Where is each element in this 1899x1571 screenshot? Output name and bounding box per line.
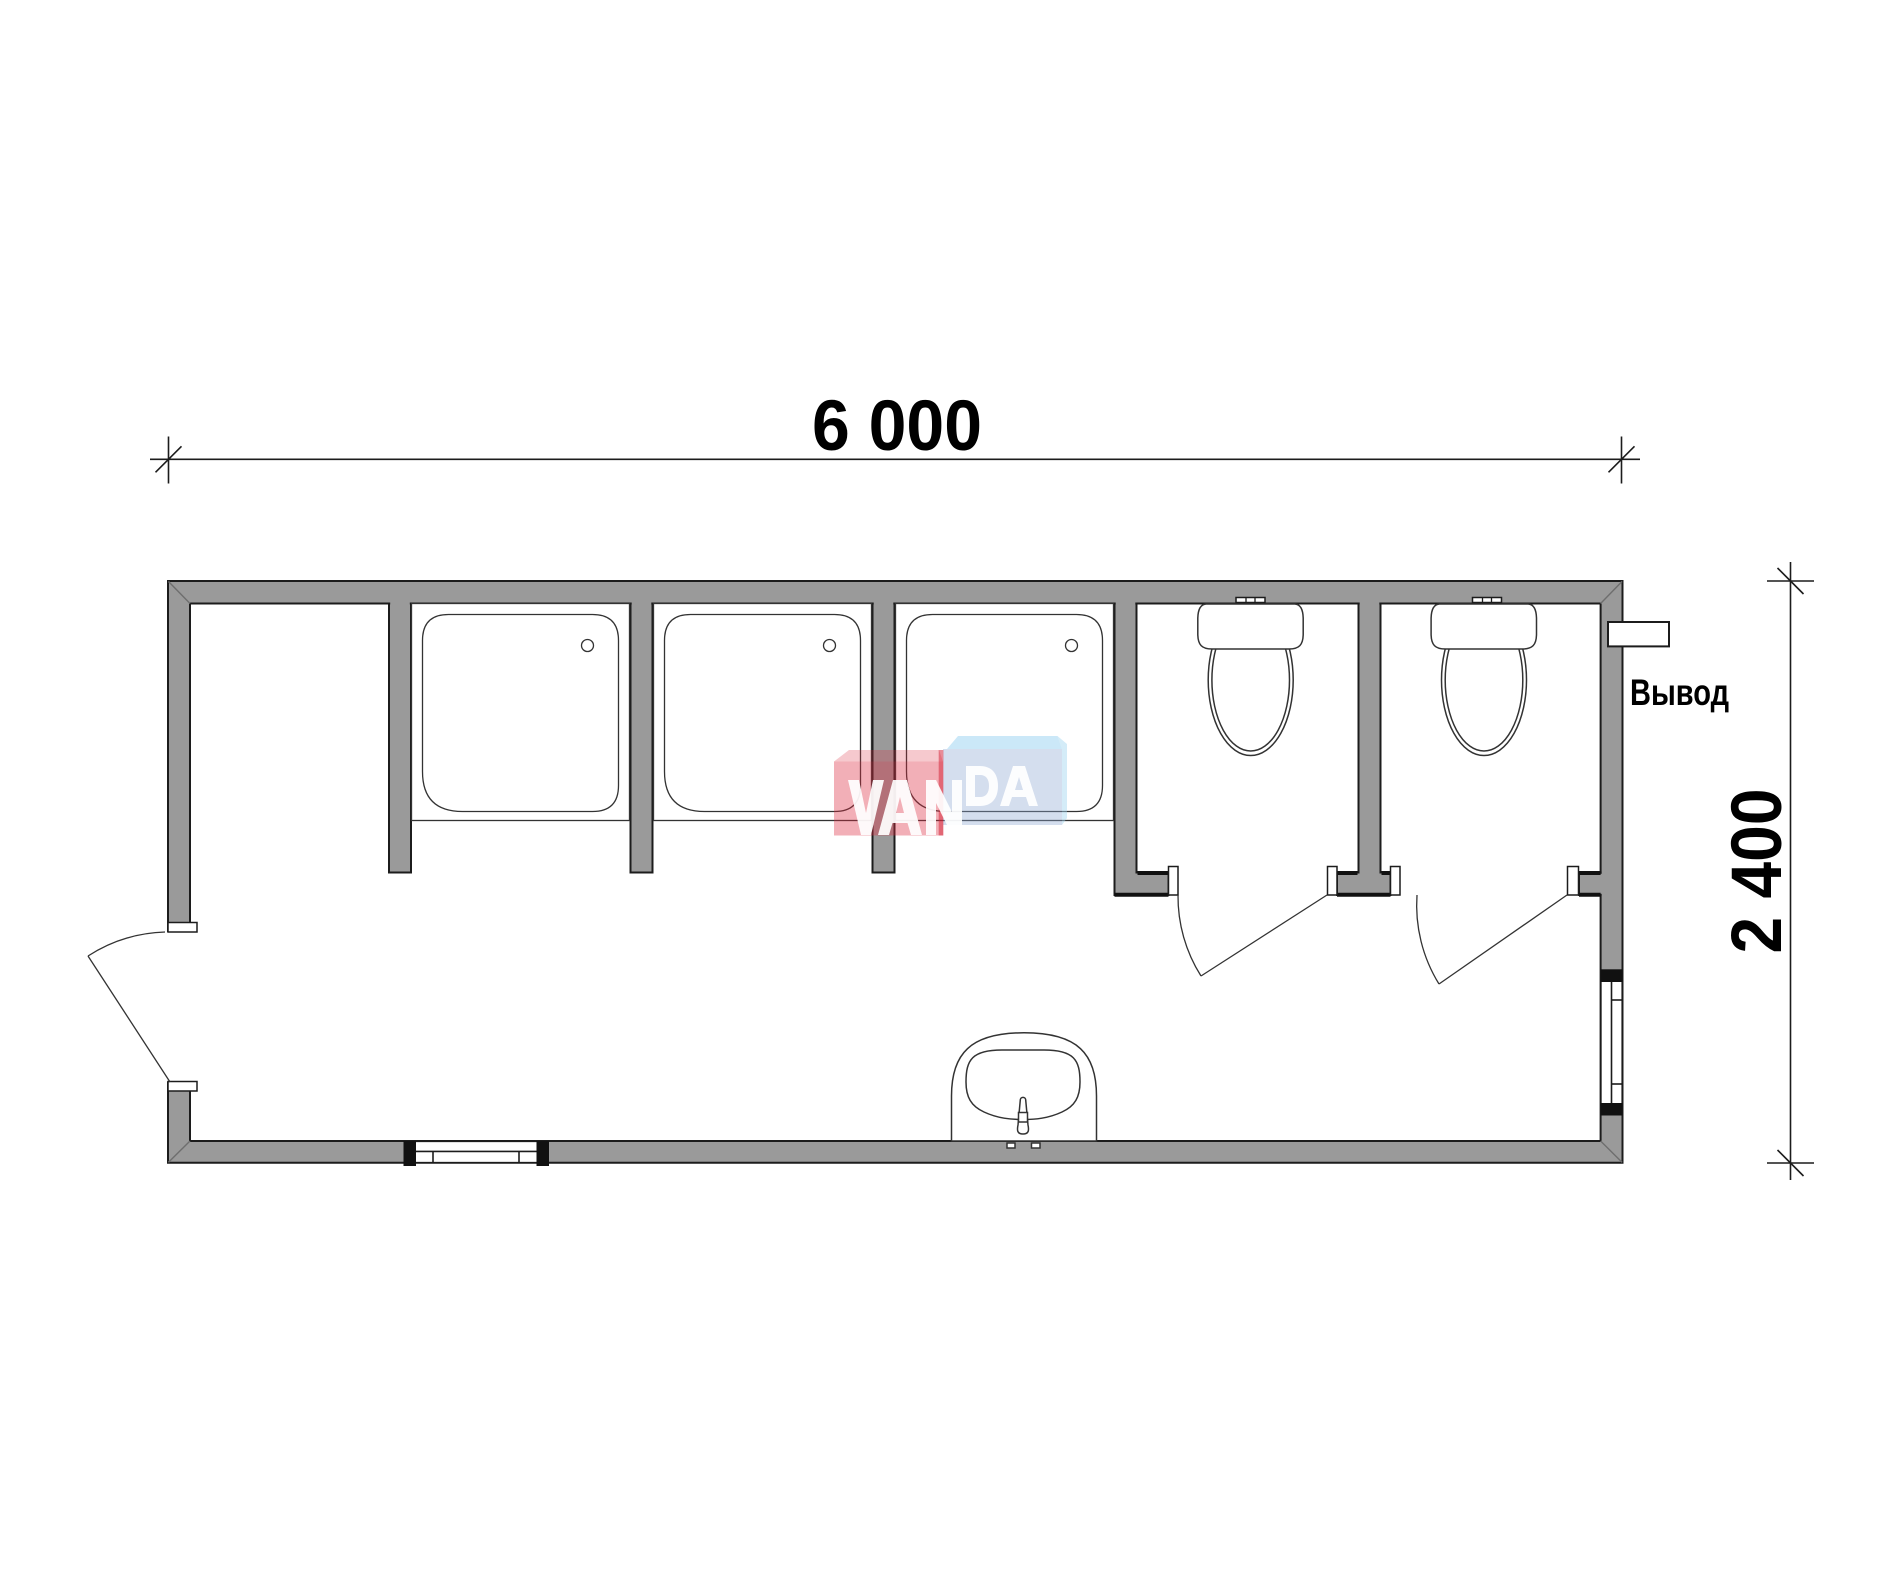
- svg-text:2 400: 2 400: [1717, 789, 1797, 954]
- svg-text:Вывод: Вывод: [1630, 672, 1729, 713]
- svg-text:6 000: 6 000: [812, 386, 982, 466]
